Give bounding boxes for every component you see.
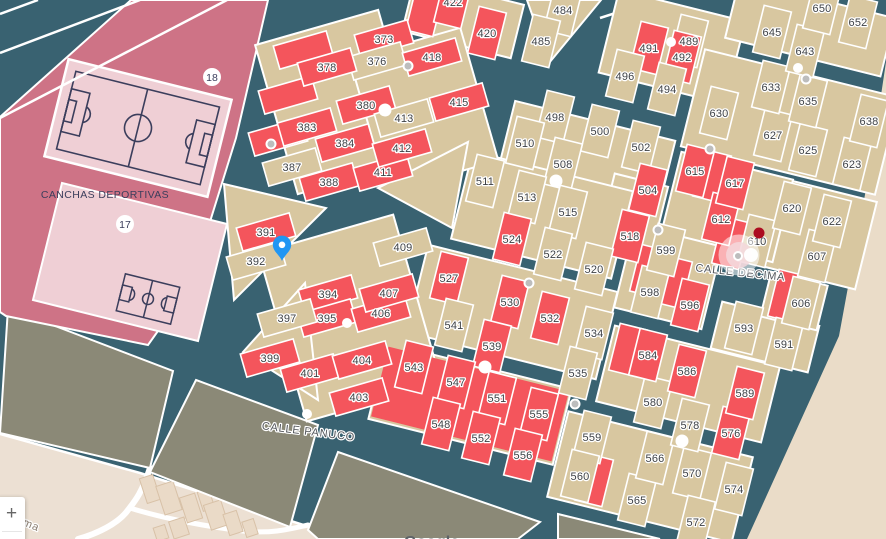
parcel-number-498: 498	[546, 112, 565, 124]
parcel-number-630: 630	[710, 108, 729, 120]
intersection-dot	[793, 63, 803, 73]
parcel-number-422: 422	[444, 0, 463, 9]
parcel-number-622: 622	[823, 216, 842, 228]
parcel-number-522: 522	[544, 249, 563, 261]
parcel-number-535: 535	[569, 368, 588, 380]
parcel-number-534: 534	[585, 328, 604, 340]
intersection-dot	[666, 37, 676, 47]
parcel-number-589: 589	[736, 388, 755, 400]
node-dot	[267, 140, 276, 149]
zoom-in-button[interactable]: +	[0, 497, 25, 539]
parcel-number-543: 543	[405, 362, 424, 374]
parcel-number-645: 645	[763, 27, 782, 39]
intersection-dot	[342, 318, 352, 328]
parcel-number-556: 556	[514, 450, 533, 462]
parcel-number-578: 578	[681, 420, 700, 432]
map-svg[interactable]: 3733763783803833843873883913923943953973…	[0, 0, 886, 539]
parcel-number-520: 520	[585, 264, 604, 276]
parcel-number-586: 586	[678, 366, 697, 378]
intersection-dot	[479, 361, 492, 374]
parcel-number-420: 420	[478, 28, 497, 40]
parcel-number-387: 387	[283, 162, 302, 174]
parcel-number-378: 378	[318, 62, 337, 74]
parcel-number-551: 551	[488, 393, 507, 405]
parcel-number-373: 373	[375, 34, 394, 46]
parcel-number-615: 615	[686, 166, 705, 178]
parcel-number-555: 555	[530, 409, 549, 421]
parcel-number-392: 392	[247, 256, 266, 268]
parcel-number-652: 652	[849, 17, 868, 29]
parcel-number-625: 625	[799, 145, 818, 157]
parcel-number-409: 409	[394, 242, 413, 254]
parcel-number-596: 596	[681, 300, 700, 312]
parcel-number-411: 411	[374, 167, 392, 179]
parcel-number-532: 532	[541, 313, 560, 325]
node-dot	[571, 400, 580, 409]
parcel-number-511: 511	[476, 176, 494, 188]
parcel-number-391: 391	[257, 227, 276, 239]
parcel-number-584: 584	[639, 350, 658, 362]
parcel-number-591: 591	[775, 339, 794, 351]
parcel-number-376: 376	[368, 56, 387, 68]
parcel-number-399: 399	[261, 353, 280, 365]
node-dot	[654, 226, 663, 235]
parcel-number-623: 623	[843, 159, 862, 171]
park-name-label: CANCHAS DEPORTIVAS	[41, 189, 169, 201]
parcel-number-635: 635	[799, 96, 818, 108]
parcel-number-494: 494	[658, 84, 677, 96]
parcel-number-518: 518	[621, 231, 640, 243]
map-canvas[interactable]: 3733763783803833843873883913923943953973…	[0, 0, 886, 539]
parcel-number-530: 530	[501, 297, 520, 309]
zoom-control-divider	[2, 531, 22, 532]
parcel-number-513: 513	[518, 192, 537, 204]
parcel-number-415: 415	[450, 97, 469, 109]
parcel-number-496: 496	[616, 71, 635, 83]
parcel-number-559: 559	[583, 432, 602, 444]
area-number-badge-label: 18	[206, 72, 218, 84]
parcel-number-500: 500	[591, 126, 610, 138]
location-center-dot	[734, 252, 742, 260]
parcel-number-491: 491	[640, 43, 659, 55]
parcel-number-394: 394	[319, 289, 338, 301]
parcel-number-576: 576	[722, 428, 741, 440]
parcel-number-489: 489	[680, 36, 699, 48]
parcel-number-502: 502	[632, 142, 651, 154]
parcel-number-485: 485	[532, 36, 551, 48]
parcel-number-560: 560	[571, 471, 590, 483]
parcel-number-599: 599	[657, 245, 676, 257]
node-dot	[802, 75, 811, 84]
parcel-number-552: 552	[472, 433, 491, 445]
parcel-number-548: 548	[432, 419, 451, 431]
node-dot	[525, 279, 534, 288]
parcel-number-395: 395	[318, 313, 337, 325]
parcel-number-401: 401	[301, 368, 320, 380]
parcel-number-566: 566	[646, 453, 665, 465]
parcel-number-539: 539	[483, 341, 502, 353]
google-logo: Google	[404, 534, 459, 539]
parcel-number-547: 547	[447, 377, 466, 389]
parcel-number-515: 515	[559, 207, 578, 219]
parcel-number-397: 397	[278, 313, 297, 325]
parcel-number-572: 572	[687, 517, 706, 529]
area-number-badge-label: 17	[119, 219, 131, 231]
pin-hole	[279, 242, 286, 249]
parcel-number-638: 638	[860, 116, 879, 128]
parcel-number-383: 383	[298, 122, 317, 134]
parcel-number-633: 633	[762, 82, 781, 94]
parcel-number-541: 541	[445, 320, 464, 332]
parcel-number-413: 413	[395, 113, 414, 125]
intersection-dot	[550, 175, 563, 188]
parcel-number-606: 606	[792, 298, 811, 310]
parcel-number-565: 565	[628, 495, 647, 507]
parcel-number-412: 412	[393, 143, 412, 155]
intersection-dot	[676, 435, 689, 448]
parcel-number-384: 384	[336, 138, 355, 150]
intersection-dot	[379, 104, 392, 117]
parcel-number-620: 620	[783, 203, 802, 215]
parcel-number-510: 510	[516, 138, 535, 150]
parcel-number-508: 508	[554, 159, 573, 171]
parcel-number-574: 574	[725, 484, 744, 496]
node-dot	[706, 145, 715, 154]
parcel-number-580: 580	[644, 397, 663, 409]
parcel-number-524: 524	[503, 234, 522, 246]
parcel-number-607: 607	[808, 251, 827, 263]
parcel-number-627: 627	[764, 130, 783, 142]
parcel-number-418: 418	[423, 52, 442, 64]
parcel-number-598: 598	[641, 287, 660, 299]
parcel-number-617: 617	[726, 178, 745, 190]
node-dot	[404, 62, 413, 71]
parcel-number-570: 570	[683, 468, 702, 480]
parcel-number-527: 527	[440, 273, 459, 285]
plus-icon[interactable]: +	[3, 497, 17, 531]
parcel-number-388: 388	[320, 177, 339, 189]
parcel-number-650: 650	[813, 3, 832, 15]
parcel-number-643: 643	[796, 46, 815, 58]
parcel-number-380: 380	[357, 100, 376, 112]
parcel-number-504: 504	[639, 185, 658, 197]
parcel-number-403: 403	[350, 392, 369, 404]
location-blob	[744, 248, 758, 262]
parcel-number-593: 593	[735, 323, 754, 335]
parcel-number-407: 407	[380, 288, 399, 300]
parcel-number-612: 612	[712, 214, 731, 226]
parcel-number-492: 492	[673, 52, 692, 64]
red-dot-marker[interactable]	[754, 228, 765, 239]
parcel-number-404: 404	[353, 355, 372, 367]
intersection-dot	[302, 409, 312, 419]
parcel-number-406: 406	[372, 308, 391, 320]
parcel-number-484: 484	[554, 5, 573, 17]
